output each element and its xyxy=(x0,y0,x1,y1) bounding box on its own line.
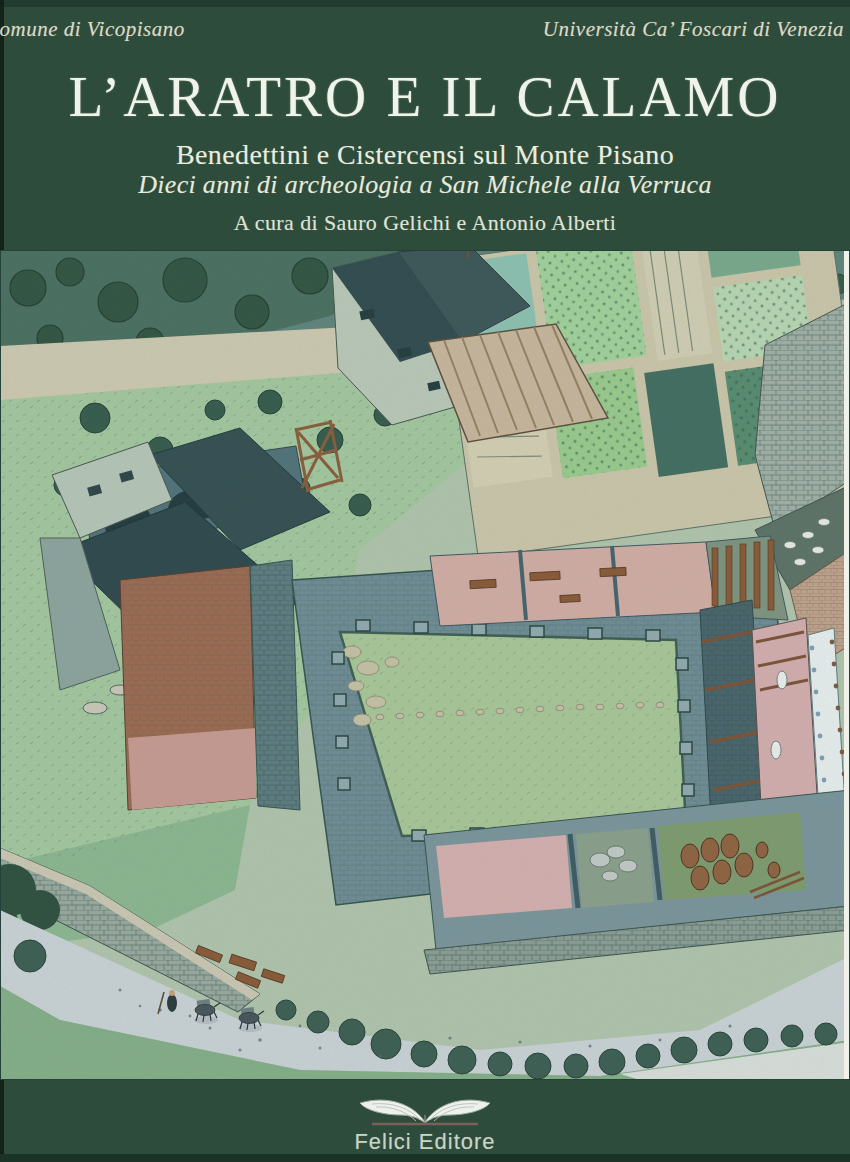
book-title: L’ARATRO E IL CALAMO xyxy=(0,64,850,129)
institution-right: Università Ca’ Foscari di Venezia xyxy=(543,17,844,42)
monastery-aerial-illustration xyxy=(0,250,850,1080)
institution-left: Comune di Vicopisano xyxy=(0,17,185,42)
book-editors-line: A cura di Sauro Gelichi e Antonio Albert… xyxy=(0,210,850,236)
publisher-block: Felici Editore xyxy=(0,1084,850,1155)
open-book-icon xyxy=(350,1084,500,1128)
publisher-name: Felici Editore xyxy=(0,1129,850,1155)
book-series-line: Dieci anni di archeologia a San Michele … xyxy=(0,170,850,200)
book-cover: Comune di Vicopisano Università Ca’ Fosc… xyxy=(0,0,850,1162)
scan-edge-top xyxy=(0,0,850,7)
book-subtitle: Benedettini e Cistercensi sul Monte Pisa… xyxy=(0,139,850,171)
scan-edge-bottom xyxy=(0,1154,850,1162)
